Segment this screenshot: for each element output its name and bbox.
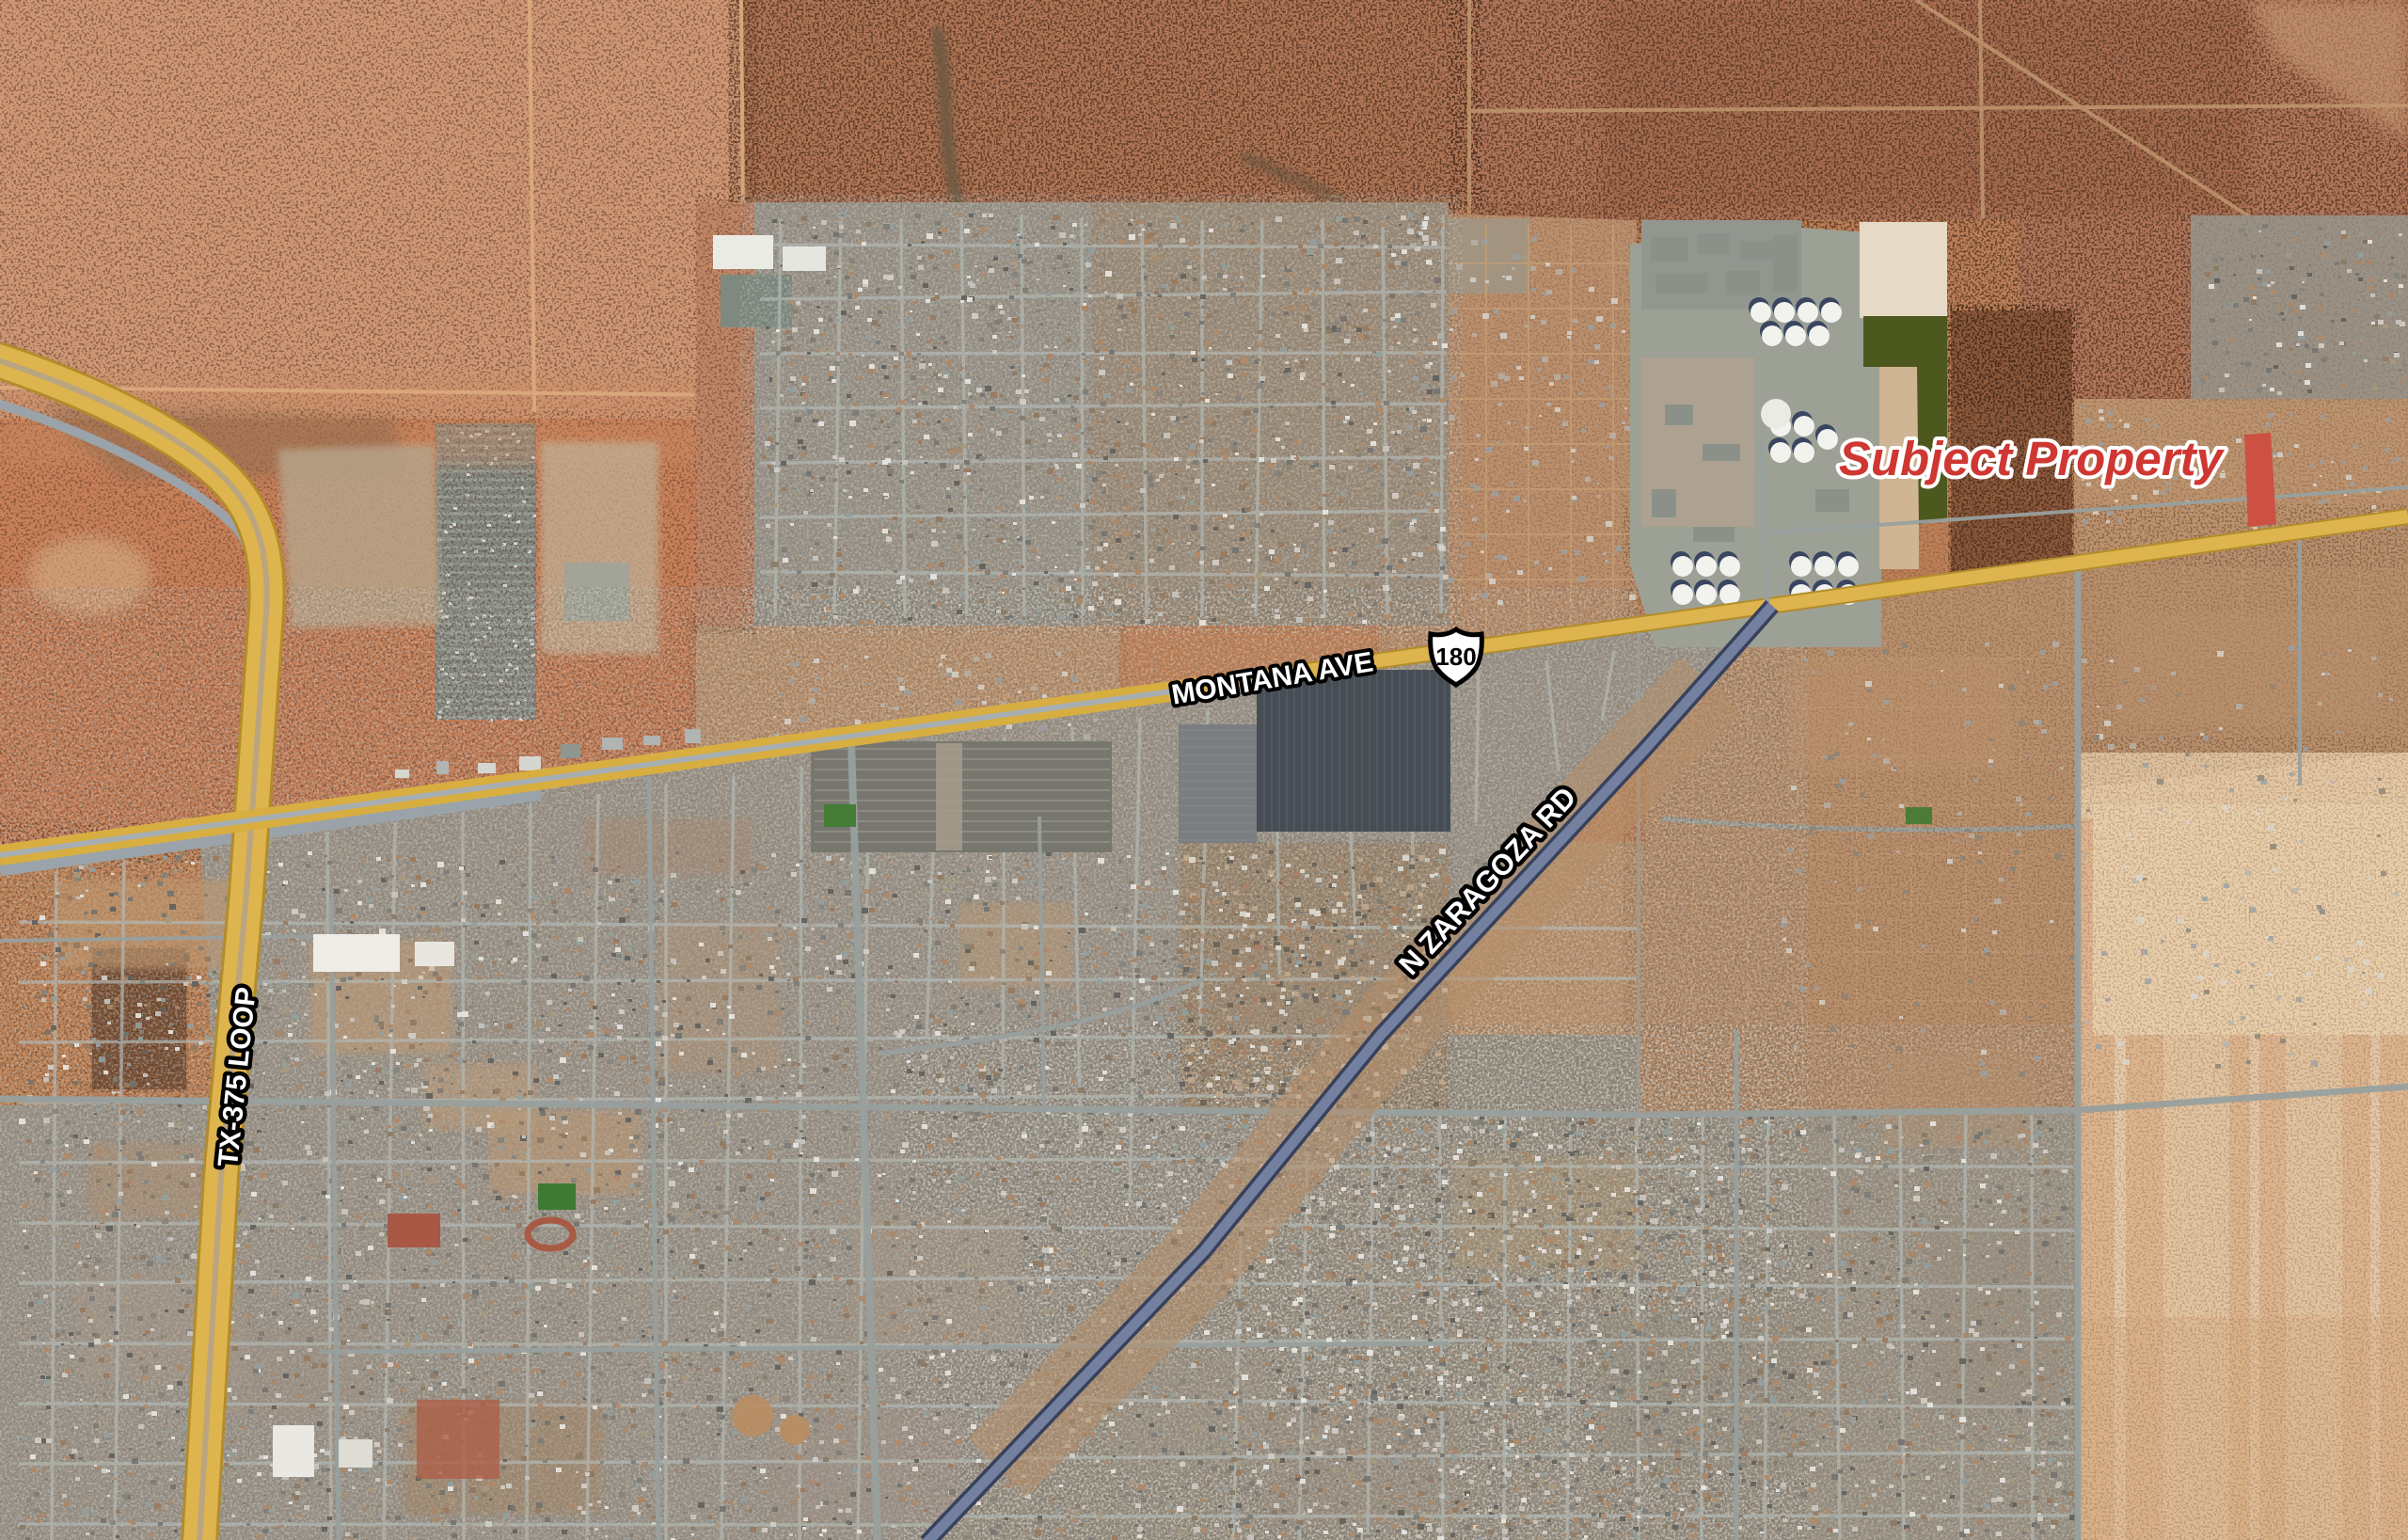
svg-text:Subject Property: Subject Property — [1839, 432, 2226, 485]
svg-text:180: 180 — [1435, 643, 1476, 671]
